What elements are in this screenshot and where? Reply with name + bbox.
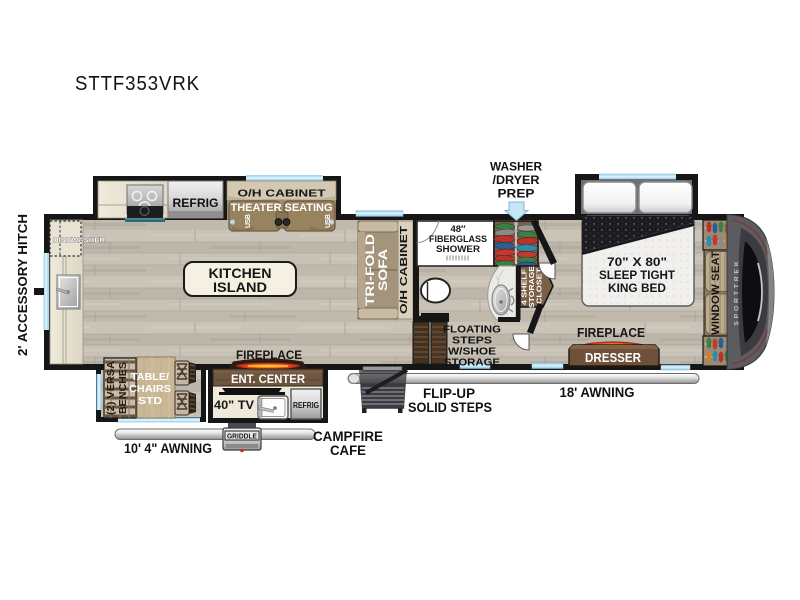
- svg-text:FIBERGLASS: FIBERGLASS: [429, 234, 487, 244]
- svg-text:SHOWER: SHOWER: [436, 244, 480, 254]
- svg-text:FLIP-UP: FLIP-UP: [423, 386, 475, 401]
- svg-text:DRESSER: DRESSER: [585, 351, 641, 365]
- svg-text:WASHER: WASHER: [490, 160, 542, 174]
- svg-text:STORAGE: STORAGE: [444, 357, 500, 369]
- svg-text:KING BED: KING BED: [608, 283, 666, 295]
- svg-text:18' AWNING: 18' AWNING: [560, 385, 635, 400]
- svg-text:FIREPLACE: FIREPLACE: [577, 326, 645, 340]
- svg-text:/DRYER: /DRYER: [493, 173, 540, 187]
- svg-text:CHAIRS: CHAIRS: [129, 383, 171, 395]
- svg-text:DISHWASHER: DISHWASHER: [53, 236, 106, 245]
- svg-text:SOFA: SOFA: [378, 249, 390, 291]
- svg-text:PREP: PREP: [498, 187, 535, 201]
- svg-text:FIREPLACE: FIREPLACE: [236, 348, 302, 362]
- svg-text:O/H CABINET: O/H CABINET: [399, 226, 410, 314]
- svg-text:GRIDDLE: GRIDDLE: [227, 432, 257, 441]
- svg-text:CAMPFIRE: CAMPFIRE: [313, 429, 383, 444]
- svg-text:ENT. CENTER: ENT. CENTER: [231, 374, 306, 386]
- svg-text:KITCHEN: KITCHEN: [209, 266, 272, 281]
- svg-text:2' ACCESSORY HITCH: 2' ACCESSORY HITCH: [16, 214, 30, 356]
- svg-text:CAFE: CAFE: [330, 443, 366, 458]
- svg-text:STD: STD: [138, 395, 162, 407]
- svg-text:ISLAND: ISLAND: [213, 280, 267, 295]
- svg-text:WINDOW SEAT: WINDOW SEAT: [710, 251, 722, 335]
- svg-text:REFRIG: REFRIG: [293, 401, 319, 410]
- svg-text:USB: USB: [245, 214, 252, 228]
- svg-text:10' 4" AWNING: 10' 4" AWNING: [124, 441, 212, 456]
- svg-text:REFRIG: REFRIG: [173, 198, 219, 210]
- svg-text:THEATER SEATING: THEATER SEATING: [231, 202, 333, 214]
- svg-text:SPORTTREK: SPORTTREK: [734, 258, 741, 325]
- svg-text:SLEEP TIGHT: SLEEP TIGHT: [599, 270, 675, 282]
- svg-text:TRI-FOLD: TRI-FOLD: [365, 234, 377, 306]
- svg-text:USB: USB: [325, 214, 332, 228]
- svg-text:70" X 80": 70" X 80": [607, 257, 667, 269]
- svg-text:O/H CABINET: O/H CABINET: [238, 189, 326, 200]
- svg-text:SOLID STEPS: SOLID STEPS: [408, 400, 492, 415]
- svg-text:TABLE/: TABLE/: [131, 371, 169, 383]
- svg-text:(2) VERSA: (2) VERSA: [106, 361, 117, 415]
- svg-text:40" TV: 40" TV: [214, 400, 254, 412]
- svg-text:STTF353VRK: STTF353VRK: [75, 73, 200, 95]
- svg-text:BENCHES: BENCHES: [118, 362, 129, 414]
